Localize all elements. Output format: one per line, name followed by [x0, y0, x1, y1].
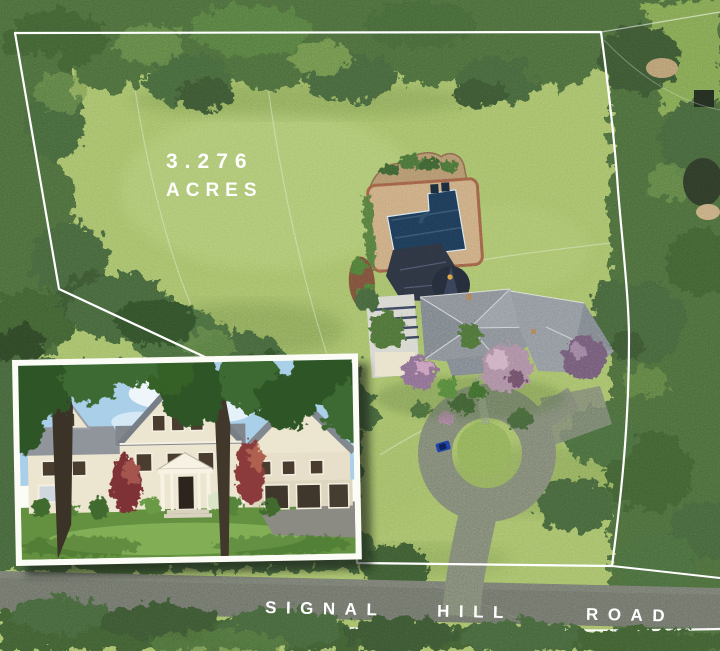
inset-photo-content	[0, 337, 388, 560]
aerial-site-plan: 3.276 ACRES SIGNAL HILL ROAD	[0, 0, 720, 651]
aerial-site-plan-canvas: 3.276 ACRES SIGNAL HILL ROAD	[0, 0, 720, 651]
road-word-hill: HILL	[437, 602, 513, 623]
inset-photo	[0, 337, 388, 576]
acreage-unit: ACRES	[166, 180, 263, 201]
road-word-road: ROAD	[586, 605, 674, 626]
acreage-value: 3.276	[166, 150, 254, 173]
road-word-signal: SIGNAL	[265, 598, 387, 620]
